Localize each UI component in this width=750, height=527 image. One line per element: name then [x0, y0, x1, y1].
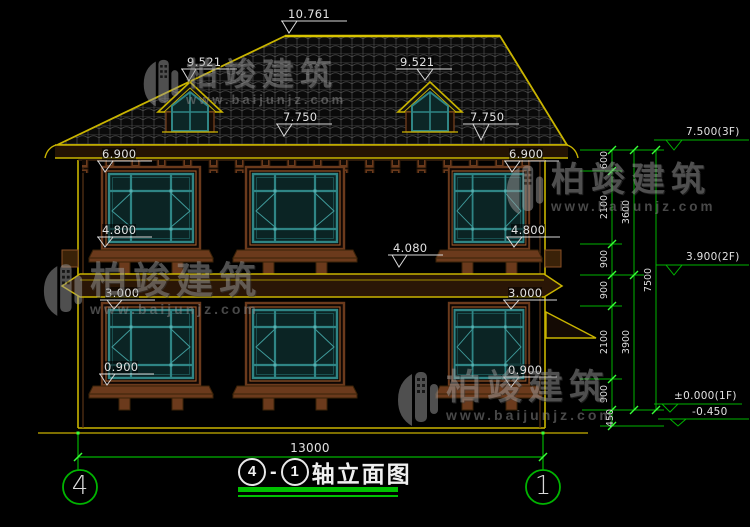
- dim-label-dormer-right: 9.521: [400, 56, 434, 68]
- chain-inner-600: 600: [599, 139, 611, 181]
- dim-label-dormer-left: 9.521: [187, 56, 221, 68]
- side-awning: [546, 312, 596, 338]
- dim-label-win1-left: 3.000: [105, 287, 139, 299]
- title-axis-start: 4: [238, 458, 266, 486]
- axis-bubble-left-number: 4: [63, 470, 97, 504]
- elev-label-3f: 7.500(3F): [686, 126, 740, 138]
- axis-bubble-right-number: 1: [526, 470, 560, 504]
- chain-mid-3600: 3600: [621, 191, 633, 233]
- dim-label-total-width: 13000: [290, 442, 330, 454]
- chain-inner-2100b: 2100: [599, 321, 611, 363]
- dim-label-sill1-right: 0.900: [508, 364, 542, 376]
- chain-mid-3900: 3900: [621, 321, 633, 363]
- sill-2f: [89, 250, 542, 274]
- chain-inner-450: 450: [605, 397, 617, 439]
- dim-label-roof-right: 7.750: [470, 111, 504, 123]
- dim-label-eave-left: 6.900: [102, 148, 136, 160]
- window-2f-2: [246, 167, 344, 249]
- dim-label-belt: 4.080: [393, 242, 427, 254]
- chain-inner-2100a: 2100: [599, 186, 611, 228]
- title-underline-thin: [238, 495, 398, 497]
- eave-curl-left: [45, 145, 56, 158]
- belt-corbel-right: [545, 250, 561, 267]
- belt-corbel-left: [62, 250, 78, 267]
- roof: [57, 36, 567, 145]
- dim-label-eave-right: 6.900: [509, 148, 543, 160]
- elev-label-2f: 3.900(2F): [686, 251, 740, 263]
- window-1f-2: [246, 303, 344, 385]
- cad-linework: [0, 0, 750, 527]
- eave-curl-right: [567, 145, 578, 158]
- title-underline-thick: [238, 487, 398, 492]
- dim-label-sill2-right: 4.800: [511, 224, 545, 236]
- title-axis-end: 1: [281, 458, 309, 486]
- title-dash: -: [270, 461, 277, 484]
- title-text: 轴立面图: [312, 455, 412, 489]
- dim-label-sill1-left: 0.900: [104, 361, 138, 373]
- dim-label-sill2-left: 4.800: [102, 224, 136, 236]
- elev-label-ground: -0.450: [692, 406, 728, 418]
- chain-outer-7500: 7500: [643, 259, 655, 301]
- elev-label-1f: ±0.000(1F): [674, 390, 737, 402]
- dim-label-win1-right: 3.000: [508, 287, 542, 299]
- elevation-drawing-canvas: 10.761 9.521 9.521 7.750 7.750 6.900 6.9…: [0, 0, 750, 527]
- dim-label-roof-left: 7.750: [283, 111, 317, 123]
- dim-label-ridge: 10.761: [288, 8, 330, 20]
- chain-inner-900b: 900: [599, 269, 611, 311]
- sill-1f: [89, 386, 542, 410]
- ground-line: [38, 428, 588, 433]
- drawing-title: 4 - 1 轴立面图: [238, 455, 412, 489]
